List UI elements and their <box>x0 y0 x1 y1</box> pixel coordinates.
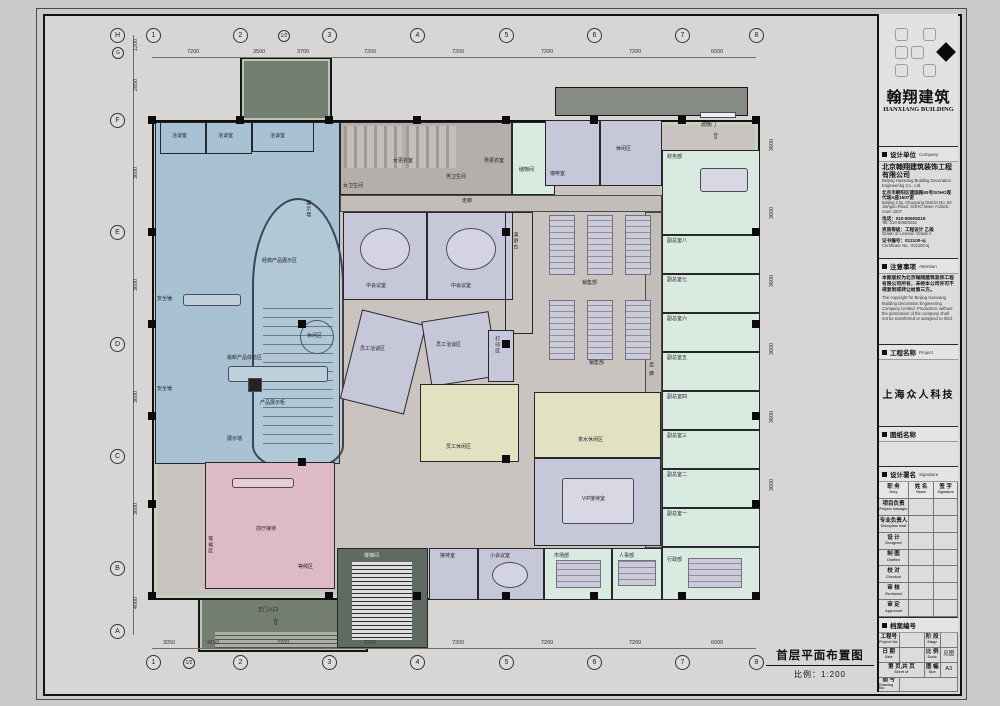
square-bullet-icon <box>882 472 887 477</box>
dim-label: 7200 <box>187 49 199 55</box>
column <box>752 412 760 420</box>
dim-line-left <box>133 35 134 635</box>
evacuation-door <box>700 112 736 118</box>
logo-icon <box>887 28 955 80</box>
table-cell <box>900 678 958 692</box>
room-label: 打印区 <box>494 336 499 354</box>
company-addr-cn: 北京市朝阳区建国路93号SOHO现代城A座1507室 <box>882 190 955 201</box>
column <box>148 412 156 420</box>
table-cell <box>909 600 934 617</box>
company-addr-en: Beijing City, Chaoyang District No. 93 J… <box>882 201 955 215</box>
dim-label: 7200 <box>629 640 641 646</box>
sales-desk-cluster <box>549 300 575 360</box>
room-label: 前厅接待 <box>256 527 276 532</box>
column <box>502 340 510 348</box>
toilet-stalls-men <box>406 126 456 168</box>
room-label: 咖啡室 <box>550 172 565 177</box>
table-cell <box>909 566 934 583</box>
grid-bubble: 6 <box>587 655 602 670</box>
grid-bubble: 8 <box>749 655 764 670</box>
grid-bubble: 7 <box>675 655 690 670</box>
dim-label: 7200 <box>277 640 289 646</box>
column <box>148 320 156 328</box>
company-cert-en: Certificate No.: 012100-sj <box>882 244 955 249</box>
entrance-label: 正门入口 <box>258 608 278 613</box>
dim-label: 3600 <box>769 139 775 151</box>
room-lounge-top <box>600 120 662 186</box>
project-name: 上海众人科技 <box>883 386 955 401</box>
dim-label: 3600 <box>769 275 775 287</box>
room-tea-leisure <box>534 392 661 458</box>
drawing-scale: 比例：1:200 <box>766 669 874 680</box>
dim-label: 6000 <box>711 640 723 646</box>
grid-bubble: F <box>110 113 125 128</box>
grid-bubble: 1/2 <box>183 657 195 669</box>
up-arrow-icon: ⇧ <box>272 617 280 628</box>
room-label: 储物间 <box>519 168 534 173</box>
room-label: 市场部 <box>554 554 569 559</box>
grid-bubble: E <box>110 225 125 240</box>
table-cell <box>909 516 934 533</box>
grid-bubble: 3 <box>322 28 337 43</box>
room-label: 休闲区 <box>307 334 322 339</box>
column <box>502 116 510 124</box>
table-cell <box>934 550 958 567</box>
room-label: 男卫生间 <box>446 175 466 180</box>
grid-bubble: G <box>112 47 124 59</box>
size-value: A3 <box>941 663 958 678</box>
dim-label: 3600 <box>769 343 775 355</box>
column <box>752 116 760 124</box>
drawing-sheet: 洽谈室 洽谈室 洽谈室 展示墙 休闲区 最新产品体验区 产品展示柜 展示墙 经典… <box>0 0 1000 706</box>
column <box>236 116 244 124</box>
room-label: 楼梯间 <box>364 554 379 559</box>
dim-label: 7200 <box>541 49 553 55</box>
grid-bubble: 5 <box>499 655 514 670</box>
safety-label: 安全锤 <box>157 297 172 302</box>
section-header-project: 工程名称 Project <box>879 344 958 360</box>
dim-label: 3600 <box>769 411 775 423</box>
room-label: 副总室八 <box>667 239 687 244</box>
finance-table <box>700 168 748 192</box>
header-en: Company <box>919 152 938 157</box>
company-logo: 翰翔建筑 HANXIANG BUILDING <box>879 14 958 146</box>
sales-desk-cluster <box>549 215 575 275</box>
table-cell <box>909 550 934 567</box>
dim-label: 3600 <box>133 391 139 403</box>
room-label: 产品展示柜 <box>260 401 285 406</box>
table-cell <box>934 583 958 600</box>
scale-value: 见图 <box>941 648 958 663</box>
column <box>752 500 760 508</box>
attention-en: The copyright for Beijing Hanxiang Build… <box>882 295 955 321</box>
room-label: 小会议室 <box>490 554 510 559</box>
sales-desk-cluster <box>587 215 613 275</box>
column <box>752 228 760 236</box>
table-cell <box>934 566 958 583</box>
sales-desk-cluster <box>587 300 613 360</box>
dim-label: 3050 <box>163 640 175 646</box>
table-cell <box>909 499 934 516</box>
room-label: VIP接待室 <box>582 497 605 502</box>
up-arrow-icon: ⇧ <box>712 131 720 142</box>
safety-label: 安全锤 <box>157 387 172 392</box>
column <box>752 592 760 600</box>
column <box>298 458 306 466</box>
room-label: 副总室一 <box>667 512 687 517</box>
small-meeting-table <box>492 562 528 588</box>
attention-cn: 本图版权为北京翰翔建筑装饰工程有限公司所有，未经本公司许可不得复制或转让给第三方… <box>882 276 955 293</box>
room-label: 茶水休闲区 <box>578 438 603 443</box>
table-cell <box>909 533 934 550</box>
room-label: 副总室七 <box>667 278 687 283</box>
meeting-table-1 <box>360 228 410 270</box>
dim-label: 3700 <box>297 49 309 55</box>
signature-table: 职 务Duty 姓 名Name 签 字Signature 项目负责Project… <box>879 482 958 617</box>
section-header-drawing-name: 图纸名称 <box>879 426 958 442</box>
room-print <box>488 330 514 382</box>
evacuation-door-label: 疏散门 <box>701 123 716 128</box>
title-block: 翰翔建筑 HANXIANG BUILDING 设计单位 Company 北京翰翔… <box>877 14 958 692</box>
dim-label: 3600 <box>769 479 775 491</box>
square-bullet-icon <box>882 350 887 355</box>
column <box>413 116 421 124</box>
room-label: 员工休闲区 <box>446 445 471 450</box>
table-cell <box>909 583 934 600</box>
room-label: 经典产品展示区 <box>262 259 297 264</box>
column <box>590 116 598 124</box>
section-header-signature: 设计署名 Signature <box>879 466 958 482</box>
square-bullet-icon <box>882 152 887 157</box>
room-label: 女卫生间 <box>343 184 363 189</box>
room-label: 人事部 <box>619 554 634 559</box>
table-cell <box>934 533 958 550</box>
dim-label: 3600 <box>133 167 139 179</box>
drawing-title-block: 首层平面布置图 比例：1:200 <box>766 647 874 680</box>
hr-desks <box>618 560 656 586</box>
header-cn: 设计单位 <box>890 149 916 159</box>
room-finance <box>662 150 760 235</box>
table-cell <box>900 648 925 663</box>
header-cn: 图纸名称 <box>890 429 916 439</box>
section-header-archive: 档案编号 <box>879 617 958 633</box>
reception-counter <box>232 478 294 488</box>
company-info: 北京翰翔建筑装饰工程有限公司 Beijing Hanxiang Building… <box>879 162 958 258</box>
room-staff-leisure <box>420 384 519 462</box>
room-label: 员工洽谈区 <box>360 347 385 352</box>
corridor-label: 走 廊 <box>648 362 653 376</box>
room-label: 展示墙 <box>227 437 242 442</box>
room-label: 副总室六 <box>667 317 687 322</box>
column <box>148 116 156 124</box>
column-block <box>248 378 262 392</box>
column <box>678 592 686 600</box>
square-bullet-icon <box>882 623 887 628</box>
dim-label: 4000 <box>133 597 139 609</box>
column <box>325 592 333 600</box>
dim-label: 7200 <box>452 640 464 646</box>
table-cell <box>934 499 958 516</box>
room-label: 男更衣室 <box>484 159 504 164</box>
column <box>502 228 510 236</box>
header-en: Attention <box>919 264 937 269</box>
grid-bubble: C <box>110 449 125 464</box>
room-label: 中会议室 <box>366 284 386 289</box>
experience-table <box>228 366 328 382</box>
header-en: Signature <box>919 472 938 477</box>
dim-label: 3600 <box>133 279 139 291</box>
column <box>752 320 760 328</box>
dim-label: 3600 <box>769 207 775 219</box>
room-label: 接待室 <box>440 554 455 559</box>
duty-label: 校 对 <box>887 569 900 575</box>
room-label: 女更衣室 <box>393 159 413 164</box>
grid-bubble: D <box>110 337 125 352</box>
terrace-top <box>240 57 332 122</box>
grid-bubble: A <box>110 624 125 639</box>
grid-bubble: 8 <box>749 28 764 43</box>
company-name-cn: 北京翰翔建筑装饰工程有限公司 <box>882 164 955 179</box>
stair-treads <box>352 562 412 640</box>
dept-label: 销售部 <box>589 361 604 366</box>
logo-name-en: HANXIANG BUILDING <box>879 106 958 113</box>
logo-name-cn: 翰翔建筑 <box>879 86 958 107</box>
room-label: 最新产品体验区 <box>227 356 262 361</box>
podium-label: 演讲台 <box>512 232 517 250</box>
dim-label: 7200 <box>364 640 376 646</box>
dim-label: 1200 <box>133 39 139 51</box>
grid-bubble: 2 <box>233 655 248 670</box>
table-cell <box>934 600 958 617</box>
table-cell <box>900 633 925 648</box>
grid-bubble: 7 <box>675 28 690 43</box>
room-label: 洽谈室 <box>172 134 187 139</box>
company-tel-en: Tel: 010-80609216 <box>882 221 955 226</box>
room-label: 等候区 <box>207 536 212 554</box>
header-cn: 设计署名 <box>890 469 916 479</box>
header-en: Project <box>919 350 933 355</box>
company-name-en: Beijing Hanxiang Building Decoration Eng… <box>882 179 955 189</box>
dim-label: 7200 <box>364 49 376 55</box>
attention-text: 本图版权为北京翰翔建筑装饰工程有限公司所有，未经本公司许可不得复制或转让给第三方… <box>879 274 958 344</box>
dim-label: 2850 <box>133 79 139 91</box>
grid-bubble: 1/2 <box>278 30 290 42</box>
column <box>148 592 156 600</box>
room-label: 财务部 <box>667 155 682 160</box>
header-cn: 工程名称 <box>890 347 916 357</box>
dim-label: 7200 <box>452 49 464 55</box>
grid-bubble: H <box>110 28 125 43</box>
grid-bubble: 1 <box>146 655 161 670</box>
dim-label: 6000 <box>711 49 723 55</box>
dept-label: 销售部 <box>582 281 597 286</box>
sales-desk-cluster <box>625 300 651 360</box>
grid-bubble: 5 <box>499 28 514 43</box>
column <box>148 500 156 508</box>
duty-label: 审 定 <box>887 603 900 609</box>
column <box>678 116 686 124</box>
drawing-name-box <box>879 442 958 466</box>
room-label: 等候区 <box>298 565 313 570</box>
section-header-company: 设计单位 Company <box>879 146 958 162</box>
grid-bubble: 2 <box>233 28 248 43</box>
room-label: 行政部 <box>667 558 682 563</box>
marketing-desks <box>556 560 601 588</box>
meeting-table-2 <box>446 228 496 270</box>
square-bullet-icon <box>882 264 887 269</box>
dim-label: 3500 <box>253 49 265 55</box>
corridor-horizontal <box>340 195 662 212</box>
grid-bubble: 1 <box>146 28 161 43</box>
column <box>148 228 156 236</box>
duty-label: 审 核 <box>887 586 900 592</box>
room-label: 副总室四 <box>667 395 687 400</box>
dim-line-bottom <box>152 648 756 649</box>
drawing-title: 首层平面布置图 <box>766 647 874 666</box>
project-name-box: 上海众人科技 <box>879 360 958 426</box>
dim-label: 4150 <box>207 640 219 646</box>
room-label: 副总室二 <box>667 473 687 478</box>
table-cell <box>941 633 958 648</box>
room-label: 副总室三 <box>667 434 687 439</box>
table-cell <box>934 516 958 533</box>
admin-desks <box>688 558 742 588</box>
company-grade-en: Grade of License: Grade A <box>882 232 955 237</box>
room-label: 副总室五 <box>667 356 687 361</box>
column <box>413 592 421 600</box>
header-cn: 注意事项 <box>890 261 916 271</box>
room-label: 员工洽谈区 <box>436 343 461 348</box>
column <box>502 455 510 463</box>
diamond-icon <box>936 42 956 62</box>
dim-line-top <box>152 57 756 58</box>
column <box>325 116 333 124</box>
dim-label: 7200 <box>541 640 553 646</box>
grid-bubble: 4 <box>410 655 425 670</box>
column <box>502 592 510 600</box>
grid-bubble: 3 <box>322 655 337 670</box>
grid-bubble: 6 <box>587 28 602 43</box>
room-label: 中会议室 <box>451 284 471 289</box>
dim-label: 7200 <box>629 49 641 55</box>
sales-desk-cluster <box>625 215 651 275</box>
grid-bubble: B <box>110 561 125 576</box>
dim-label: 3600 <box>133 503 139 515</box>
archive-table: 工程号Project No. 阶 段Stage 日 期Date 比 例Scale… <box>879 633 958 692</box>
section-header-attention: 注意事项 Attention <box>879 258 958 274</box>
room-label: 展示墙 <box>305 200 310 218</box>
room-label: 洽谈室 <box>218 134 233 139</box>
room-label: 休闲区 <box>616 147 631 152</box>
column <box>590 592 598 600</box>
grid-bubble: 4 <box>410 28 425 43</box>
square-bullet-icon <box>882 432 887 437</box>
corridor-label: 走廊 <box>462 199 472 204</box>
display-counter <box>183 294 241 306</box>
column <box>298 320 306 328</box>
room-label: 洽谈室 <box>270 134 285 139</box>
header-cn: 档案编号 <box>890 620 916 630</box>
